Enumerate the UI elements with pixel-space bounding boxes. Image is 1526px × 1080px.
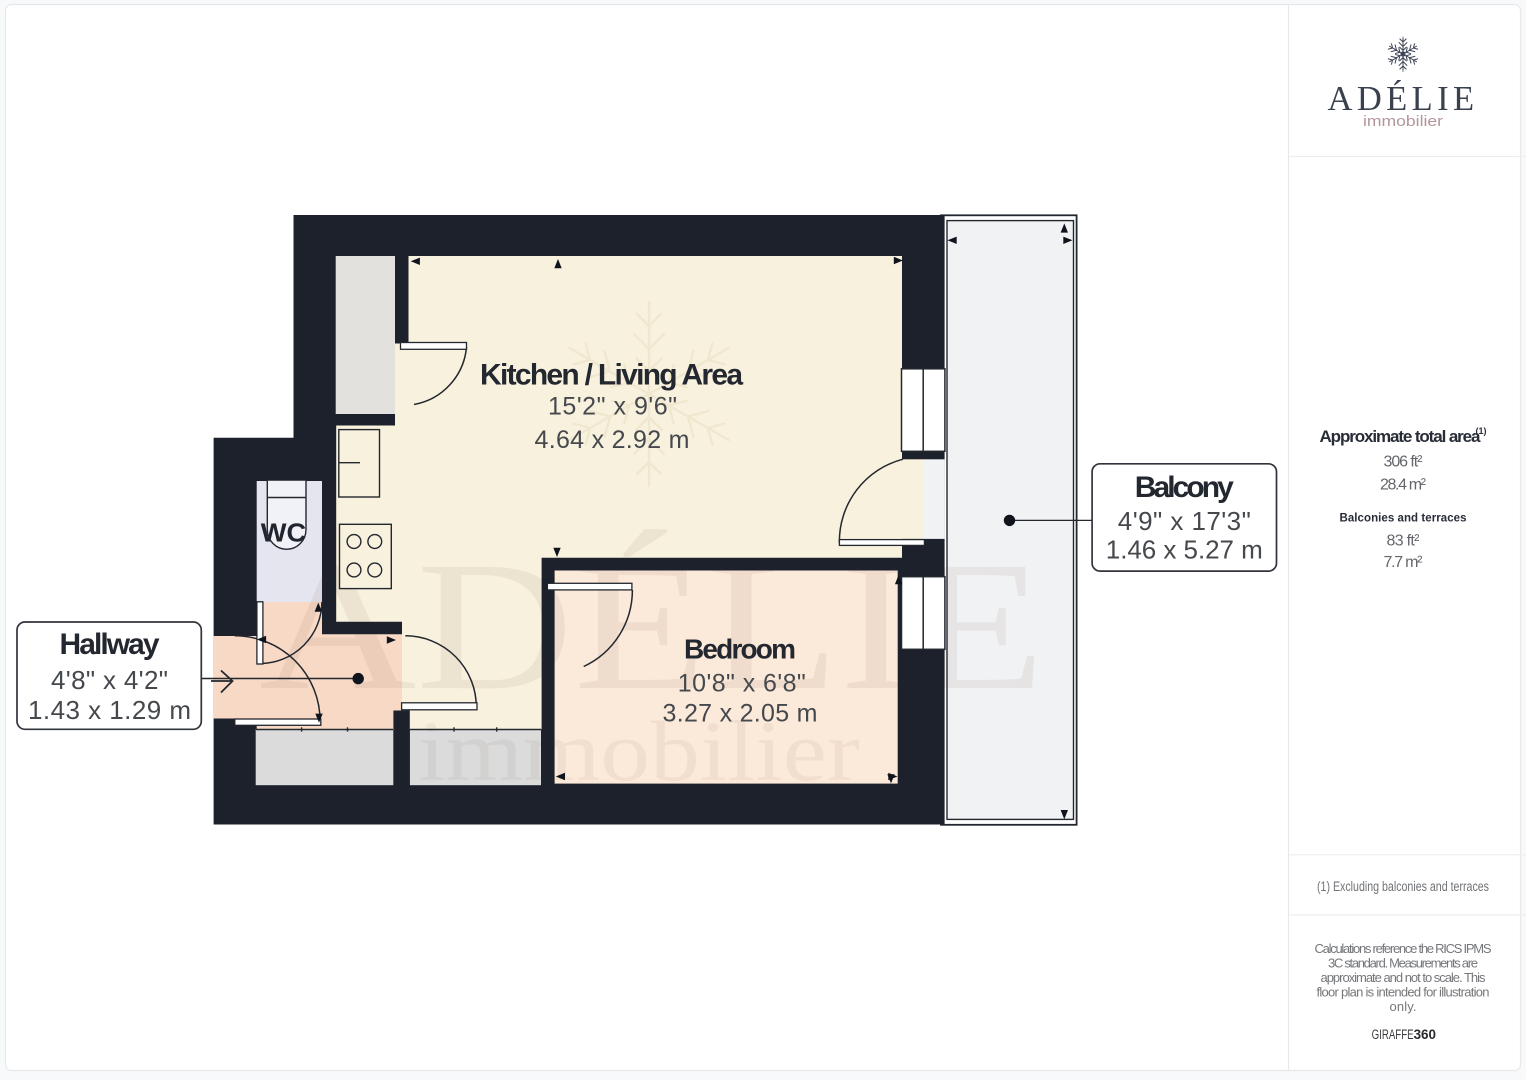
svg-text:360: 360 [1414, 1027, 1436, 1042]
svg-text:Hallway: Hallway [60, 628, 160, 661]
svg-text:3.27 x 2.05 m: 3.27 x 2.05 m [663, 700, 818, 728]
svg-text:10'8" x 6'8": 10'8" x 6'8" [678, 670, 806, 698]
svg-text:(1) Excluding balconies and te: (1) Excluding balconies and terraces [1317, 879, 1489, 894]
svg-text:28.4 m²: 28.4 m² [1380, 477, 1427, 494]
svg-text:15'2" x 9'6": 15'2" x 9'6" [548, 393, 677, 421]
svg-text:approximate and not to scale.: approximate and not to scale. This [1321, 970, 1487, 985]
svg-text:Kitchen / Living Area: Kitchen / Living Area [480, 359, 743, 392]
svg-text:3C standard. Measurements are: 3C standard. Measurements are [1328, 956, 1478, 971]
svg-text:(1): (1) [1476, 426, 1487, 436]
svg-text:immobilier: immobilier [1363, 113, 1443, 130]
svg-text:Balcony: Balcony [1135, 471, 1234, 504]
svg-text:Bedroom: Bedroom [684, 634, 796, 665]
svg-text:Balconies and terraces: Balconies and terraces [1340, 512, 1467, 524]
svg-text:83 ft²: 83 ft² [1387, 533, 1421, 550]
svg-text:4'8" x 4'2": 4'8" x 4'2" [51, 665, 168, 695]
svg-text:Approximate total area: Approximate total area [1320, 427, 1482, 446]
svg-text:WC: WC [261, 518, 307, 548]
svg-text:4.64 x 2.92 m: 4.64 x 2.92 m [535, 426, 690, 454]
svg-text:floor plan is intended for ill: floor plan is intended for illustration [1317, 985, 1490, 1000]
svg-text:1.46 x 5.27 m: 1.46 x 5.27 m [1106, 535, 1263, 565]
svg-text:GIRAFFE: GIRAFFE [1372, 1027, 1414, 1042]
svg-text:4'9" x 17'3": 4'9" x 17'3" [1118, 506, 1251, 536]
svg-text:7.7 m²: 7.7 m² [1384, 554, 1424, 571]
svg-text:306 ft²: 306 ft² [1384, 454, 1424, 471]
svg-text:1.43 x 1.29 m: 1.43 x 1.29 m [28, 695, 191, 725]
svg-text:Calculations reference the RIC: Calculations reference the RICS IPMS [1315, 941, 1492, 956]
svg-text:only.: only. [1390, 999, 1417, 1014]
